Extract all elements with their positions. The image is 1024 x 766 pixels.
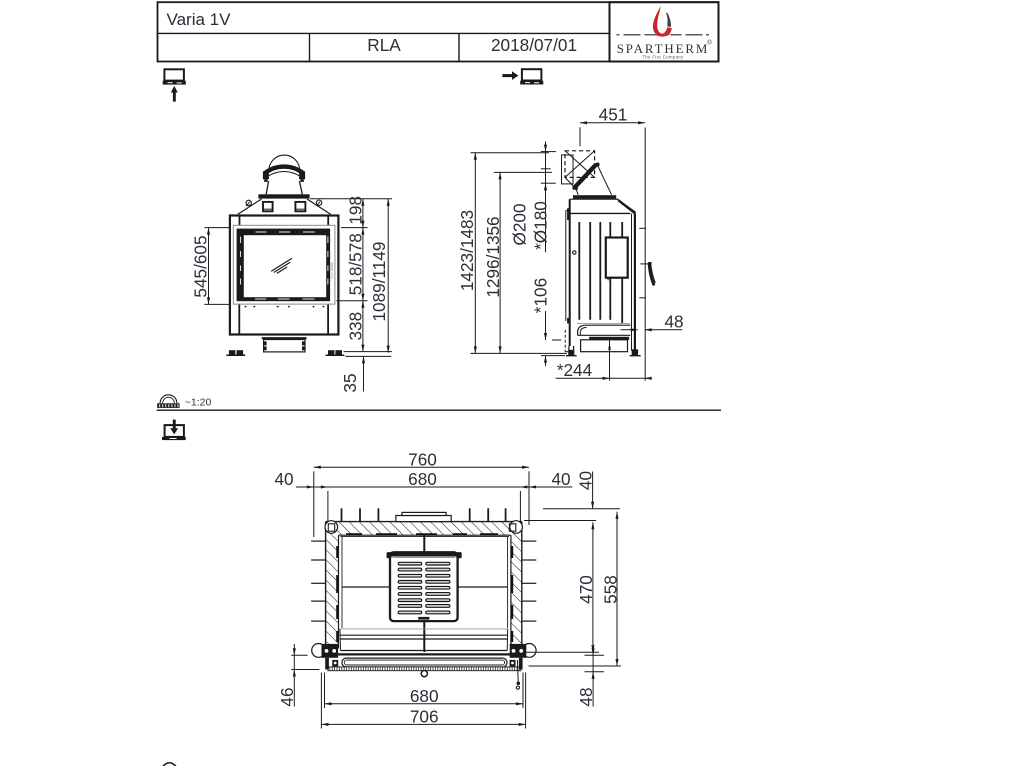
svg-text:198: 198 <box>345 196 365 225</box>
svg-text:46: 46 <box>277 687 297 706</box>
svg-text:Varia 1V: Varia 1V <box>167 10 232 29</box>
svg-text:40: 40 <box>274 469 293 489</box>
svg-text:®: ® <box>707 40 712 47</box>
svg-text:*Ø180: *Ø180 <box>531 201 551 250</box>
svg-text:35: 35 <box>340 373 360 392</box>
svg-text:338: 338 <box>345 312 365 341</box>
svg-text:~1:20: ~1:20 <box>185 396 212 408</box>
svg-text:518/578: 518/578 <box>345 233 365 295</box>
svg-text:RLA: RLA <box>367 35 401 55</box>
svg-text:470: 470 <box>576 575 596 604</box>
svg-text:760: 760 <box>408 449 437 469</box>
svg-text:451: 451 <box>599 104 628 124</box>
svg-text:48: 48 <box>664 311 683 331</box>
svg-text:The Fire Company: The Fire Company <box>642 54 684 59</box>
svg-text:680: 680 <box>410 686 439 706</box>
svg-text:40: 40 <box>551 469 570 489</box>
svg-text:558: 558 <box>600 575 620 604</box>
svg-text:1423/1483: 1423/1483 <box>457 210 477 291</box>
svg-text:1089/1149: 1089/1149 <box>369 242 389 322</box>
svg-text:*244: *244 <box>557 360 593 380</box>
svg-text:2018/07/01: 2018/07/01 <box>491 35 577 55</box>
svg-text:680: 680 <box>408 469 437 489</box>
svg-text:706: 706 <box>410 707 439 727</box>
svg-text:545/605: 545/605 <box>190 235 210 297</box>
svg-text:48: 48 <box>576 687 596 706</box>
svg-text:Ø200: Ø200 <box>509 203 529 245</box>
svg-text:*106: *106 <box>530 278 550 313</box>
svg-text:1296/1356: 1296/1356 <box>483 216 503 297</box>
